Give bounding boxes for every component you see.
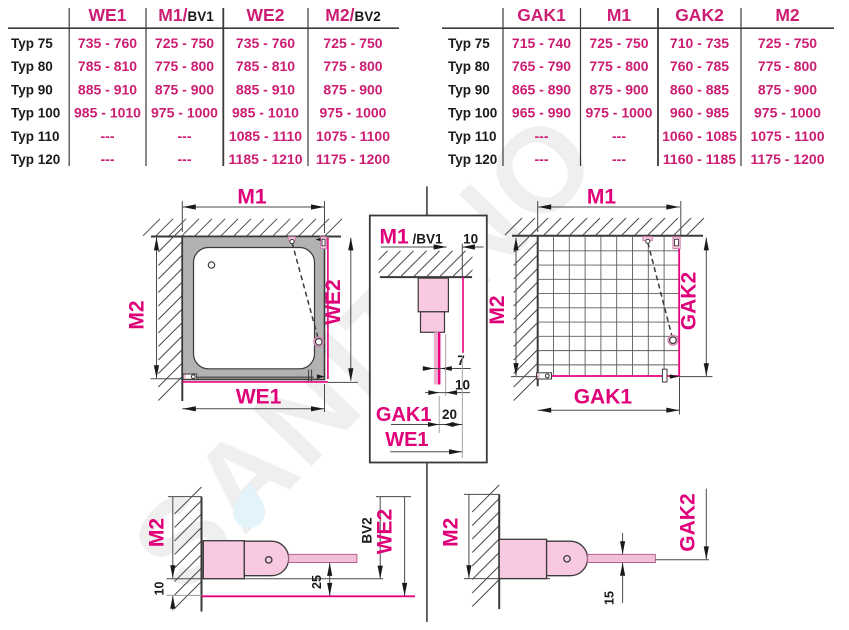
svg-text:---: --- (101, 128, 115, 144)
svg-text:760 - 785: 760 - 785 (670, 58, 729, 74)
svg-text:735 - 760: 735 - 760 (78, 35, 137, 51)
svg-text:725 - 750: 725 - 750 (323, 35, 382, 51)
svg-text:M2: M2 (486, 295, 509, 324)
svg-text:Typ 100: Typ 100 (11, 106, 60, 121)
svg-text:Typ 110: Typ 110 (448, 129, 497, 144)
svg-text:20: 20 (442, 407, 457, 422)
svg-text:725 - 750: 725 - 750 (155, 35, 214, 51)
svg-text:WE2: WE2 (247, 5, 285, 25)
svg-text:GAK1: GAK1 (376, 404, 432, 426)
svg-text:1085 - 1110: 1085 - 1110 (229, 128, 302, 144)
svg-text:7: 7 (457, 353, 465, 368)
svg-text:975 - 1000: 975 - 1000 (754, 105, 821, 121)
svg-text:M1: M1 (380, 226, 409, 249)
svg-text:1175 - 1200: 1175 - 1200 (751, 151, 825, 167)
svg-text:---: --- (612, 128, 626, 144)
svg-text:GAK2: GAK2 (675, 5, 724, 25)
svg-text:BV2: BV2 (360, 517, 375, 543)
svg-text:WE1: WE1 (385, 429, 428, 451)
svg-text:Typ 80: Typ 80 (448, 59, 490, 74)
svg-text:GAK2: GAK2 (677, 493, 700, 551)
svg-text:Typ 100: Typ 100 (448, 106, 497, 121)
svg-text:1185 - 1210: 1185 - 1210 (229, 151, 303, 167)
svg-text:775 - 800: 775 - 800 (589, 58, 648, 74)
svg-text:985 - 1010: 985 - 1010 (74, 105, 141, 121)
svg-text:965 - 990: 965 - 990 (512, 105, 571, 121)
svg-text:865 - 890: 865 - 890 (512, 81, 571, 97)
svg-text:Typ 80: Typ 80 (11, 59, 53, 74)
svg-text:Typ 110: Typ 110 (11, 129, 60, 144)
svg-text:Typ 120: Typ 120 (448, 152, 497, 167)
svg-text:875 - 900: 875 - 900 (758, 81, 817, 97)
svg-text:10: 10 (463, 232, 478, 247)
svg-text:775 - 800: 775 - 800 (323, 58, 382, 74)
svg-text:725 - 750: 725 - 750 (758, 35, 817, 51)
svg-text:975 - 1000: 975 - 1000 (586, 105, 653, 121)
svg-text:975 - 1000: 975 - 1000 (151, 105, 218, 121)
svg-text:885 - 910: 885 - 910 (78, 81, 137, 97)
svg-text:775 - 800: 775 - 800 (155, 58, 214, 74)
svg-text:885 - 910: 885 - 910 (236, 81, 295, 97)
svg-text:WE1: WE1 (89, 5, 127, 25)
svg-text:M1: M1 (607, 5, 632, 25)
svg-text:M2: M2 (440, 518, 463, 547)
svg-text:735 - 760: 735 - 760 (236, 35, 295, 51)
svg-text:M1: M1 (587, 186, 616, 209)
svg-text:---: --- (178, 151, 192, 167)
svg-text:---: --- (612, 151, 626, 167)
svg-text:Typ 90: Typ 90 (11, 82, 53, 97)
svg-text:15: 15 (603, 591, 617, 605)
svg-text:775 - 800: 775 - 800 (758, 58, 817, 74)
svg-text:WE2: WE2 (374, 509, 397, 555)
svg-text:---: --- (535, 151, 549, 167)
svg-text:M2: M2 (146, 518, 169, 547)
svg-text:/BV1: /BV1 (413, 232, 444, 247)
svg-text:960 - 985: 960 - 985 (670, 105, 729, 121)
svg-text:1075 - 1100: 1075 - 1100 (316, 128, 390, 144)
svg-text:1175 - 1200: 1175 - 1200 (316, 151, 390, 167)
svg-text:GAK1: GAK1 (517, 5, 566, 25)
svg-text:M2: M2 (775, 5, 800, 25)
svg-text:Typ 75: Typ 75 (11, 36, 53, 51)
svg-text:875 - 900: 875 - 900 (589, 81, 648, 97)
svg-text:M2/BV2: M2/BV2 (325, 5, 380, 25)
svg-text:GAK1: GAK1 (574, 386, 633, 409)
svg-text:Typ 120: Typ 120 (11, 152, 60, 167)
svg-text:Typ 75: Typ 75 (448, 36, 490, 51)
svg-text:M1/BV1: M1/BV1 (158, 5, 214, 25)
svg-text:860 - 885: 860 - 885 (670, 81, 729, 97)
svg-text:785 - 810: 785 - 810 (78, 58, 137, 74)
svg-text:975 - 1000: 975 - 1000 (320, 105, 387, 121)
svg-text:M2: M2 (126, 300, 149, 329)
svg-text:WE2: WE2 (322, 279, 345, 325)
svg-text:1075 - 1100: 1075 - 1100 (751, 128, 825, 144)
svg-text:875 - 900: 875 - 900 (323, 81, 382, 97)
svg-text:---: --- (535, 128, 549, 144)
svg-text:765 - 790: 765 - 790 (512, 58, 571, 74)
svg-text:1160 - 1185: 1160 - 1185 (663, 151, 736, 167)
svg-text:25: 25 (310, 575, 324, 589)
svg-text:785 - 810: 785 - 810 (236, 58, 295, 74)
svg-text:10: 10 (153, 582, 167, 596)
svg-text:715 - 740: 715 - 740 (512, 35, 571, 51)
svg-text:M1: M1 (237, 186, 266, 209)
svg-text:GAK2: GAK2 (678, 272, 701, 330)
svg-text:WE1: WE1 (236, 386, 282, 409)
svg-text:875 - 900: 875 - 900 (155, 81, 214, 97)
svg-text:---: --- (101, 151, 115, 167)
svg-text:Typ 90: Typ 90 (448, 82, 490, 97)
svg-text:725 - 750: 725 - 750 (589, 35, 648, 51)
svg-text:710 - 735: 710 - 735 (670, 35, 729, 51)
svg-text:1060 - 1085: 1060 - 1085 (662, 128, 737, 144)
svg-text:---: --- (178, 128, 192, 144)
svg-text:985 - 1010: 985 - 1010 (232, 105, 299, 121)
